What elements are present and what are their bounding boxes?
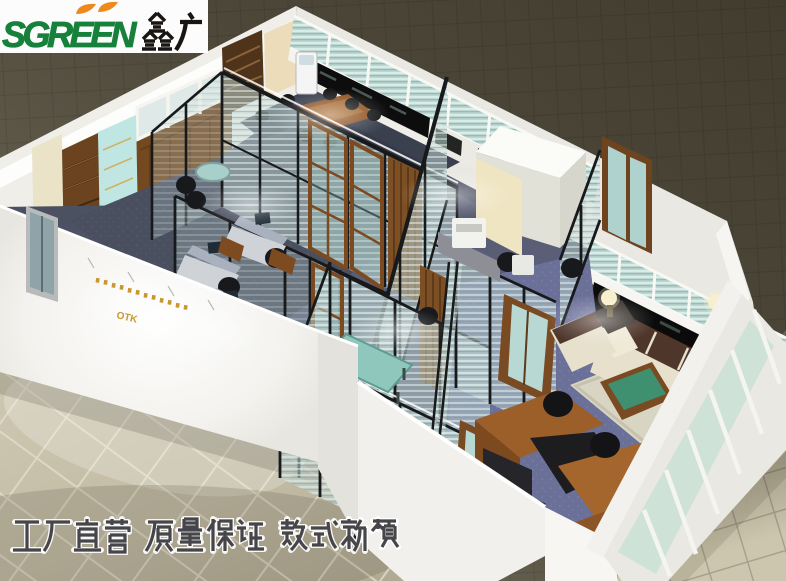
svg-text:SGREEN: SGREEN [2,14,138,55]
